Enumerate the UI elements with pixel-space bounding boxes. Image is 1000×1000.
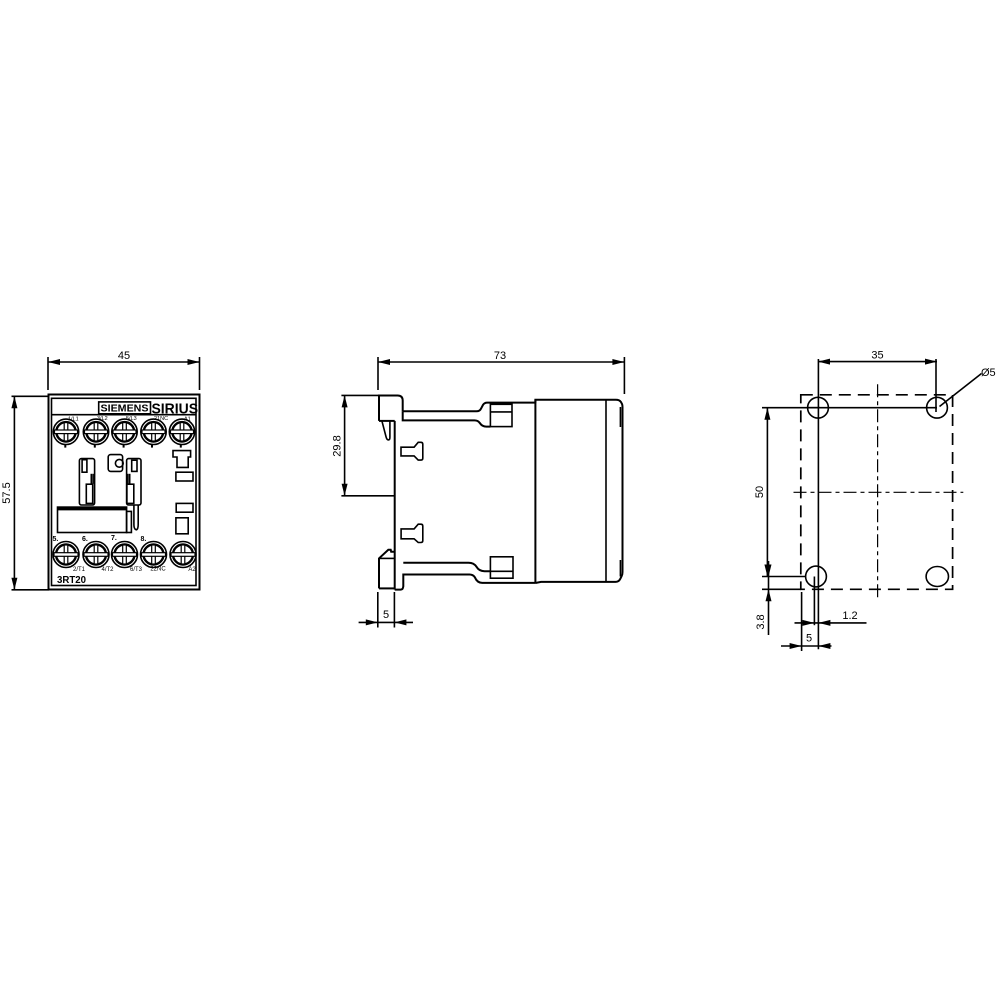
- svg-text:SIRIUS: SIRIUS: [152, 400, 199, 417]
- svg-text:Ø5: Ø5: [981, 367, 996, 379]
- svg-text:29.8: 29.8: [332, 435, 344, 456]
- svg-text:3.8: 3.8: [755, 614, 767, 629]
- svg-text:8.: 8.: [141, 536, 147, 543]
- svg-text:3RT20: 3RT20: [57, 574, 86, 586]
- svg-text:22NC: 22NC: [150, 567, 166, 573]
- svg-text:35: 35: [871, 350, 883, 362]
- svg-text:5: 5: [383, 609, 389, 621]
- svg-text:2/T1: 2/T1: [73, 567, 86, 573]
- svg-text:45: 45: [118, 350, 130, 362]
- svg-text:A2: A2: [188, 567, 196, 573]
- svg-text:1.2: 1.2: [842, 610, 857, 622]
- svg-text:5.: 5.: [53, 536, 59, 543]
- svg-text:7.: 7.: [111, 535, 117, 542]
- svg-text:50: 50: [754, 486, 766, 498]
- svg-text:SIEMENS: SIEMENS: [101, 402, 149, 414]
- svg-text:4/T2: 4/T2: [101, 567, 114, 573]
- svg-text:6/T3: 6/T3: [130, 567, 143, 573]
- svg-text:57.5: 57.5: [1, 482, 13, 503]
- svg-text:73: 73: [494, 350, 506, 362]
- svg-text:5: 5: [806, 633, 812, 645]
- svg-text:6.: 6.: [82, 536, 88, 543]
